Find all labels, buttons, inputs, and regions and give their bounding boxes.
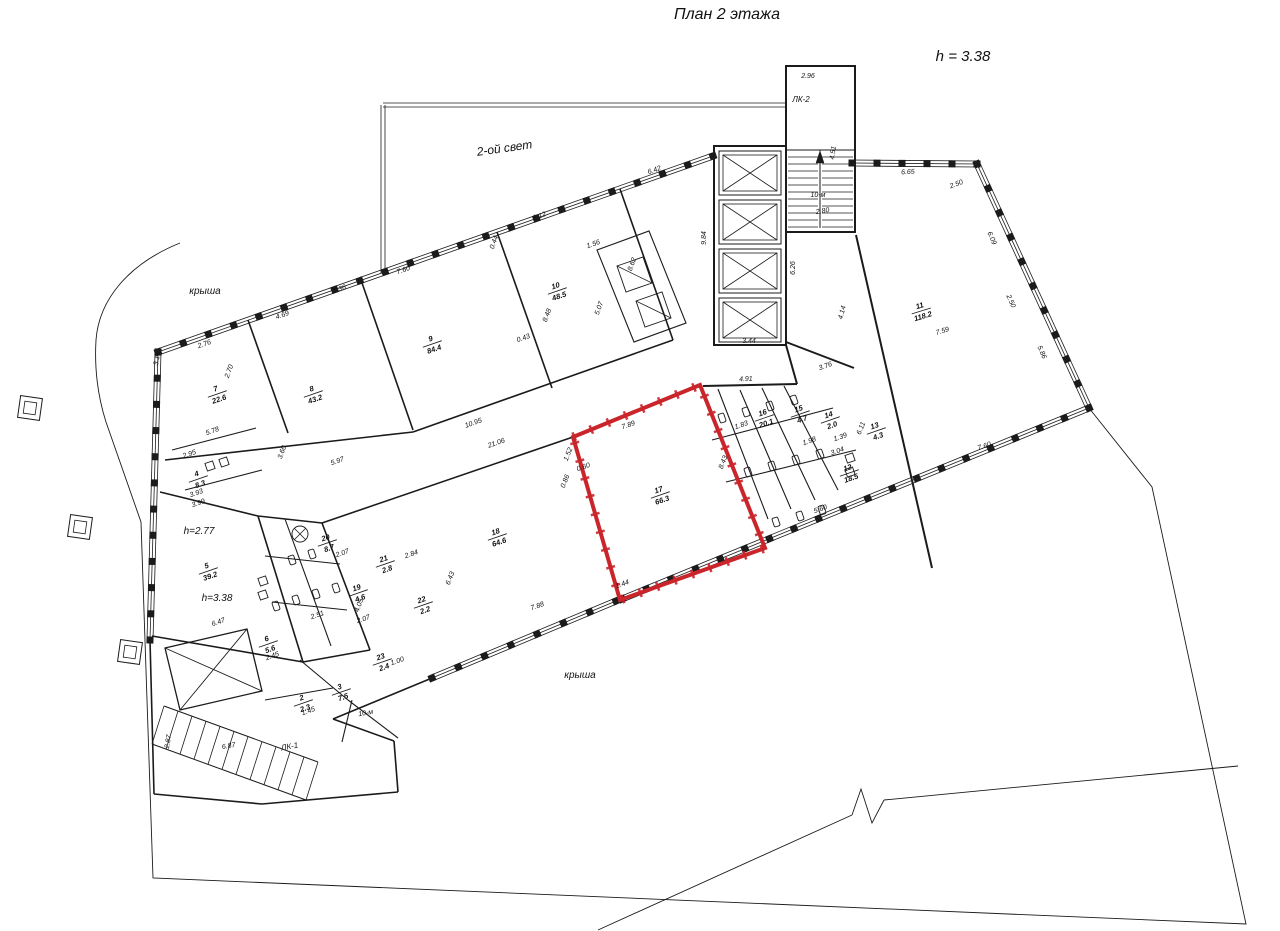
dimension-label: 2.07 xyxy=(334,548,351,560)
dimension-label: 0.43 xyxy=(516,333,531,344)
text-label: 10-м xyxy=(811,192,826,199)
room-label: 1048.5 xyxy=(545,278,570,303)
dimension-label: 21.06 xyxy=(486,437,506,450)
svg-text:6: 6 xyxy=(263,634,271,644)
dimension-label: 7.60 xyxy=(396,265,411,276)
room-label: 984.4 xyxy=(420,331,445,356)
svg-text:84.4: 84.4 xyxy=(426,342,444,356)
dimension-label: 1.52 xyxy=(563,447,575,462)
dimension-label: 8.62 xyxy=(627,257,638,272)
dimension-label: 6.11 xyxy=(856,421,867,436)
svg-text:5: 5 xyxy=(203,561,211,571)
dimension-label: 5.86 xyxy=(1035,345,1047,360)
dimension-label: 7.88 xyxy=(530,601,545,612)
atrium-outline xyxy=(381,103,786,273)
dimension-label: 2.51 xyxy=(309,610,325,621)
svg-text:118.2: 118.2 xyxy=(913,309,934,323)
dimension-label: 6.09 xyxy=(985,231,997,246)
dimension-label: 1.83 xyxy=(734,420,749,431)
room-label: 1218.5 xyxy=(837,460,862,485)
room-label: 134.3 xyxy=(864,418,889,443)
break-mark xyxy=(852,789,884,823)
svg-text:66.3: 66.3 xyxy=(654,493,672,507)
text-label: 2-ой свет xyxy=(475,137,533,159)
room-label: 722.6 xyxy=(205,381,230,406)
svg-text:22.6: 22.6 xyxy=(210,392,228,406)
svg-text:11: 11 xyxy=(915,300,925,311)
dimension-label: 5.07 xyxy=(594,300,606,316)
room-label: 1766.3 xyxy=(648,482,673,507)
svg-text:2: 2 xyxy=(297,693,306,703)
text-label: ЛК-1 xyxy=(279,741,299,753)
red-room-outline xyxy=(573,385,765,600)
floor-plan-drawing: 2.964.512.809.846.263.444.143.766.426.65… xyxy=(0,0,1280,931)
staircase-lk2 xyxy=(786,66,855,232)
dimension-label: 8.43 xyxy=(718,455,730,470)
svg-text:8: 8 xyxy=(308,384,316,394)
svg-text:4: 4 xyxy=(192,469,201,479)
dimension-label: 6.43 xyxy=(445,571,457,586)
room-label: 212.8 xyxy=(373,551,398,576)
dimension-label: 4.14 xyxy=(837,305,847,320)
dimension-label: 3.44 xyxy=(742,338,756,345)
room-labels: 22.337.548.3539.265.6722.6843.2984.41048… xyxy=(186,278,934,715)
dimension-label: 3.76 xyxy=(818,361,833,372)
site-column xyxy=(68,515,93,540)
dimension-label: 2.84 xyxy=(403,549,419,560)
site-boundary xyxy=(96,243,1246,930)
staircase-lk1 xyxy=(152,706,318,800)
text-label: ЛК-2 xyxy=(791,95,810,104)
text-label: h=2.77 xyxy=(184,526,215,537)
svg-text:64.6: 64.6 xyxy=(491,535,509,549)
site-column xyxy=(18,396,43,421)
svg-text:3: 3 xyxy=(336,682,344,692)
dimension-label: 1.00 xyxy=(390,656,405,667)
dimension-label: 1.36 xyxy=(332,284,347,295)
text-label: 10-м xyxy=(358,709,374,719)
dimension-label: 6.87 xyxy=(221,742,237,751)
room-label: 194.6 xyxy=(346,580,371,605)
dimension-label: 10.95 xyxy=(464,417,483,429)
sanitary-fixtures xyxy=(205,395,855,611)
dimension-label: 6.26 xyxy=(790,261,797,275)
dimension-label: 5.78 xyxy=(205,426,220,437)
dimension-label: 2.80 xyxy=(814,207,830,216)
dimension-label: 3.04 xyxy=(830,446,845,457)
room-label: 11118.2 xyxy=(909,298,934,323)
room-label: 539.2 xyxy=(196,558,221,583)
svg-text:18.5: 18.5 xyxy=(843,471,861,485)
dimension-label: 0.44 xyxy=(489,235,500,250)
svg-text:39.2: 39.2 xyxy=(202,569,220,583)
dimension-label: 5.97 xyxy=(330,456,346,467)
dimension-label: 4.51 xyxy=(829,146,838,160)
text-label: крыша xyxy=(564,670,596,681)
text-label: h=3.38 xyxy=(202,593,233,604)
room-label: 843.2 xyxy=(301,381,326,406)
dimension-label: 2.50 xyxy=(1004,293,1016,309)
svg-text:43.2: 43.2 xyxy=(306,392,324,406)
dimension-label: 7.59 xyxy=(935,326,950,337)
annex-outline xyxy=(150,640,432,804)
room-label: 37.5 xyxy=(329,679,354,704)
room-label: 1864.6 xyxy=(485,524,510,549)
dimension-label: 2.70 xyxy=(224,364,236,380)
dimension-label: 9.84 xyxy=(701,231,708,245)
dimension-label: 1.44 xyxy=(615,579,630,590)
floor-plan-page: План 2 этажа h = 3.38 2.964.512.809.846.… xyxy=(0,0,1280,931)
dimension-label: 2.87 xyxy=(164,733,174,750)
elevator-shafts xyxy=(714,146,786,345)
dimension-label: 2.96 xyxy=(800,73,815,80)
dimension-label: 7.89 xyxy=(621,420,636,431)
dimension-label: 4.69 xyxy=(275,310,290,321)
dimension-label: 4.91 xyxy=(739,376,753,384)
text-label: крыша xyxy=(189,286,221,297)
room-label: 222.2 xyxy=(411,592,436,617)
dimension-label: 8.48 xyxy=(542,308,553,323)
dimension-label: 6.65 xyxy=(901,169,915,177)
dimension-label: 2.50 xyxy=(948,179,964,191)
site-column xyxy=(118,640,143,665)
dimension-label: 1.56 xyxy=(586,239,601,250)
dimension-label: 1.39 xyxy=(833,432,848,443)
dimension-label: 2.95 xyxy=(181,449,197,460)
dimension-label: 0.86 xyxy=(560,474,572,489)
dimension-labels: 2.964.512.809.846.263.444.143.766.426.65… xyxy=(153,73,1047,751)
shaft-void xyxy=(597,231,686,342)
svg-text:7: 7 xyxy=(212,384,220,394)
svg-text:9: 9 xyxy=(427,334,435,344)
text-labels: 2-ой светкрышакрышаЛК-2ЛК-1h=2.77h=3.381… xyxy=(184,95,826,753)
dimension-label: 6.47 xyxy=(211,617,227,628)
